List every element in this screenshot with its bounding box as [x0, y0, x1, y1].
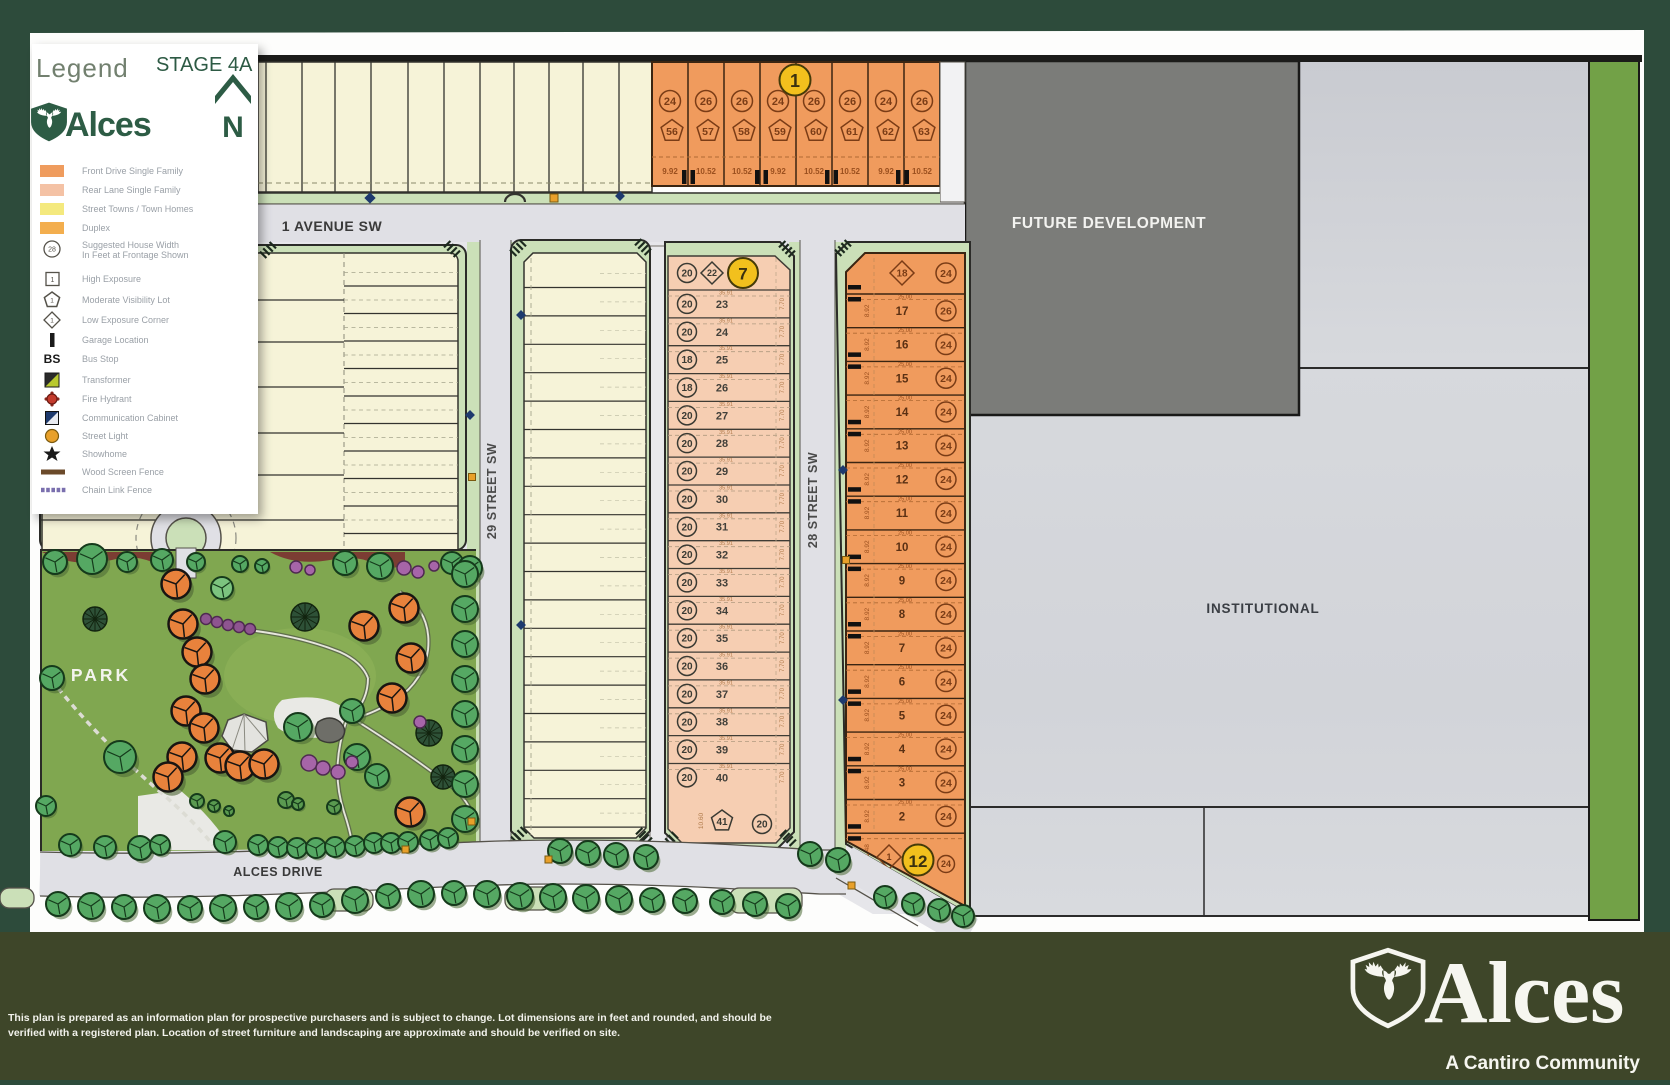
- svg-text:59: 59: [774, 126, 786, 138]
- svg-text:17: 17: [896, 306, 909, 318]
- svg-text:7.70: 7.70: [780, 492, 786, 504]
- svg-text:35.91: 35.91: [719, 541, 733, 547]
- svg-text:20: 20: [681, 773, 693, 784]
- svg-text:15: 15: [896, 373, 909, 385]
- svg-text:20: 20: [681, 689, 693, 700]
- svg-text:4: 4: [899, 744, 906, 756]
- svg-text:7.70: 7.70: [780, 437, 786, 449]
- svg-text:28: 28: [716, 438, 728, 450]
- svg-text:57: 57: [702, 126, 714, 138]
- svg-text:7.70: 7.70: [780, 353, 786, 365]
- svg-text:32: 32: [716, 550, 728, 562]
- svg-text:12: 12: [909, 852, 928, 871]
- svg-text:7.70: 7.70: [780, 715, 786, 727]
- svg-text:Transformer: Transformer: [82, 375, 131, 385]
- svg-text:8.92: 8.92: [864, 372, 871, 385]
- svg-text:Duplex: Duplex: [82, 223, 111, 233]
- svg-text:24: 24: [940, 407, 952, 419]
- svg-text:35.91: 35.91: [719, 374, 733, 380]
- svg-text:8.92: 8.92: [864, 506, 871, 519]
- svg-text:Wood Screen Fence: Wood Screen Fence: [82, 467, 164, 477]
- svg-text:25: 25: [716, 355, 728, 367]
- svg-text:20: 20: [681, 717, 693, 728]
- svg-text:Low Exposure Corner: Low Exposure Corner: [82, 315, 169, 325]
- svg-text:10.60: 10.60: [698, 812, 705, 829]
- svg-text:63: 63: [918, 126, 930, 138]
- svg-text:16: 16: [896, 340, 909, 352]
- svg-text:High Exposure: High Exposure: [82, 274, 141, 284]
- svg-text:8.92: 8.92: [864, 540, 871, 553]
- svg-text:20: 20: [681, 578, 693, 589]
- svg-text:20: 20: [681, 269, 693, 280]
- svg-text:10: 10: [896, 542, 909, 554]
- svg-text:37: 37: [716, 689, 728, 701]
- svg-text:20: 20: [681, 411, 693, 422]
- svg-text:24: 24: [940, 811, 952, 823]
- svg-text:25.00: 25.00: [898, 295, 912, 301]
- svg-text:18: 18: [681, 383, 693, 394]
- svg-text:24: 24: [940, 373, 952, 385]
- svg-text:35.91: 35.91: [719, 708, 733, 714]
- svg-text:10.52: 10.52: [840, 167, 861, 176]
- svg-text:20: 20: [681, 662, 693, 673]
- svg-text:Street Towns / Town Homes: Street Towns / Town Homes: [82, 204, 194, 214]
- svg-text:7.70: 7.70: [780, 576, 786, 588]
- svg-text:Garage Location: Garage Location: [82, 335, 149, 345]
- svg-text:verified with a registered pla: verified with a registered plan. Locatio…: [8, 1027, 620, 1039]
- svg-text:25.00: 25.00: [898, 362, 912, 368]
- svg-text:62: 62: [882, 126, 894, 138]
- svg-text:24: 24: [940, 474, 952, 486]
- svg-text:35.91: 35.91: [719, 625, 733, 631]
- svg-text:24: 24: [940, 508, 952, 520]
- svg-text:10.52: 10.52: [804, 167, 825, 176]
- svg-text:Moderate Visibility Lot: Moderate Visibility Lot: [82, 295, 170, 305]
- svg-text:24: 24: [940, 440, 952, 452]
- svg-text:24: 24: [940, 268, 952, 280]
- svg-text:26: 26: [736, 96, 748, 108]
- svg-text:20: 20: [756, 820, 768, 831]
- svg-text:25.00: 25.00: [898, 396, 912, 402]
- svg-text:29: 29: [716, 466, 728, 478]
- svg-text:STAGE 4A: STAGE 4A: [156, 54, 253, 76]
- svg-text:8.92: 8.92: [864, 439, 871, 452]
- svg-text:24: 24: [940, 676, 952, 688]
- svg-text:34: 34: [716, 605, 729, 617]
- svg-text:40: 40: [716, 772, 728, 784]
- svg-text:8.92: 8.92: [864, 810, 871, 823]
- svg-text:26: 26: [844, 96, 856, 108]
- svg-text:7.70: 7.70: [780, 465, 786, 477]
- svg-text:10.52: 10.52: [912, 167, 933, 176]
- svg-text:25.00: 25.00: [898, 800, 912, 806]
- svg-text:12: 12: [896, 474, 909, 486]
- svg-text:7: 7: [738, 265, 747, 284]
- svg-text:41: 41: [716, 817, 728, 828]
- svg-text:9: 9: [899, 575, 905, 587]
- svg-text:26: 26: [716, 382, 728, 394]
- svg-text:1: 1: [886, 852, 891, 862]
- svg-text:8: 8: [899, 609, 906, 621]
- svg-text:9.92: 9.92: [770, 167, 786, 176]
- svg-text:6: 6: [899, 677, 905, 689]
- svg-text:35.91: 35.91: [719, 430, 733, 436]
- svg-text:24: 24: [940, 339, 952, 351]
- svg-text:23: 23: [716, 299, 728, 311]
- svg-text:11: 11: [896, 508, 909, 520]
- svg-text:25.00: 25.00: [898, 429, 912, 435]
- svg-text:25.00: 25.00: [898, 699, 912, 705]
- svg-text:2: 2: [899, 811, 905, 823]
- svg-text:7.70: 7.70: [780, 520, 786, 532]
- svg-text:Showhome: Showhome: [82, 449, 127, 459]
- svg-text:1: 1: [50, 298, 54, 305]
- svg-text:8.92: 8.92: [864, 675, 871, 688]
- svg-text:20: 20: [681, 634, 693, 645]
- svg-text:8.92: 8.92: [864, 641, 871, 654]
- svg-text:8.92: 8.92: [864, 574, 871, 587]
- svg-text:35.91: 35.91: [719, 318, 733, 324]
- svg-text:29 STREET SW: 29 STREET SW: [485, 443, 499, 539]
- svg-text:22: 22: [707, 268, 717, 278]
- svg-text:26: 26: [700, 96, 712, 108]
- svg-text:INSTITUTIONAL: INSTITUTIONAL: [1206, 601, 1319, 616]
- svg-text:25.00: 25.00: [898, 766, 912, 772]
- svg-text:33: 33: [716, 577, 728, 589]
- svg-text:25.00: 25.00: [898, 598, 912, 604]
- svg-text:30: 30: [716, 494, 728, 506]
- svg-text:24: 24: [940, 575, 952, 587]
- svg-text:Bus Stop: Bus Stop: [82, 354, 119, 364]
- svg-text:35.91: 35.91: [719, 597, 733, 603]
- svg-text:26: 26: [808, 96, 820, 108]
- svg-text:3: 3: [899, 778, 905, 790]
- svg-text:7.70: 7.70: [780, 771, 786, 783]
- svg-text:7.70: 7.70: [780, 325, 786, 337]
- svg-text:25.00: 25.00: [898, 463, 912, 469]
- svg-text:25.00: 25.00: [898, 328, 912, 334]
- svg-text:28: 28: [48, 247, 56, 254]
- svg-text:20: 20: [681, 300, 693, 311]
- svg-text:24: 24: [940, 710, 952, 722]
- svg-text:7.70: 7.70: [780, 604, 786, 616]
- svg-text:1: 1: [790, 71, 800, 91]
- svg-text:35: 35: [716, 633, 728, 645]
- svg-text:7: 7: [899, 643, 905, 655]
- svg-text:7.70: 7.70: [780, 409, 786, 421]
- svg-text:5: 5: [899, 710, 906, 722]
- svg-text:35.91: 35.91: [719, 402, 733, 408]
- svg-text:58: 58: [738, 126, 750, 138]
- svg-text:26: 26: [916, 96, 928, 108]
- svg-text:35.91: 35.91: [719, 653, 733, 659]
- svg-text:18: 18: [681, 355, 693, 366]
- svg-text:56: 56: [666, 126, 678, 138]
- svg-text:BS: BS: [44, 352, 61, 366]
- svg-text:1: 1: [50, 318, 54, 325]
- svg-text:39: 39: [716, 745, 728, 757]
- svg-text:35.91: 35.91: [719, 291, 733, 297]
- svg-text:1: 1: [51, 277, 55, 284]
- svg-text:7.70: 7.70: [780, 381, 786, 393]
- svg-text:24: 24: [940, 777, 952, 789]
- svg-text:10.52: 10.52: [696, 167, 717, 176]
- svg-text:25.00: 25.00: [898, 665, 912, 671]
- svg-text:35.91: 35.91: [719, 736, 733, 742]
- svg-text:20: 20: [681, 522, 693, 533]
- svg-text:8.92: 8.92: [864, 776, 871, 789]
- svg-text:31: 31: [716, 522, 728, 534]
- svg-text:Communication Cabinet: Communication Cabinet: [82, 413, 179, 423]
- svg-text:Street Light: Street Light: [82, 431, 129, 441]
- svg-text:20: 20: [681, 550, 693, 561]
- svg-text:13: 13: [896, 441, 909, 453]
- svg-text:35.91: 35.91: [719, 458, 733, 464]
- svg-text:20: 20: [681, 494, 693, 505]
- svg-text:35.91: 35.91: [719, 680, 733, 686]
- svg-text:8.92: 8.92: [864, 304, 871, 317]
- svg-text:Front Drive Single Family: Front Drive Single Family: [82, 166, 184, 176]
- svg-text:25.00: 25.00: [898, 733, 912, 739]
- svg-text:20: 20: [681, 745, 693, 756]
- svg-text:24: 24: [940, 643, 952, 655]
- svg-text:38: 38: [716, 717, 728, 729]
- svg-text:27: 27: [716, 410, 728, 422]
- svg-text:35.91: 35.91: [719, 764, 733, 770]
- svg-text:35.91: 35.91: [719, 485, 733, 491]
- svg-text:Legend: Legend: [36, 53, 129, 83]
- svg-text:25.00: 25.00: [898, 497, 912, 503]
- svg-text:Alces: Alces: [65, 106, 151, 144]
- svg-text:In Feet at Frontage Shown: In Feet at Frontage Shown: [82, 250, 189, 260]
- svg-text:25.00: 25.00: [898, 564, 912, 570]
- svg-text:24: 24: [664, 96, 677, 108]
- svg-text:9.92: 9.92: [662, 167, 678, 176]
- svg-text:20: 20: [681, 439, 693, 450]
- svg-text:25.00: 25.00: [898, 530, 912, 536]
- svg-text:8.92: 8.92: [864, 338, 871, 351]
- svg-text:7.70: 7.70: [780, 297, 786, 309]
- svg-text:ALCES DRIVE: ALCES DRIVE: [233, 865, 323, 879]
- svg-text:7.70: 7.70: [780, 548, 786, 560]
- svg-text:PARK: PARK: [71, 665, 131, 685]
- svg-text:36: 36: [716, 661, 728, 673]
- svg-text:24: 24: [940, 542, 952, 554]
- svg-text:9.92: 9.92: [878, 167, 894, 176]
- svg-text:8.92: 8.92: [864, 405, 871, 418]
- svg-text:61: 61: [846, 126, 858, 138]
- svg-text:Alces: Alces: [1424, 945, 1624, 1042]
- svg-text:FUTURE DEVELOPMENT: FUTURE DEVELOPMENT: [1012, 215, 1206, 232]
- svg-text:14: 14: [896, 407, 909, 419]
- svg-text:35.91: 35.91: [719, 346, 733, 352]
- svg-text:24: 24: [880, 96, 893, 108]
- svg-text:20: 20: [681, 467, 693, 478]
- svg-text:24: 24: [940, 609, 952, 621]
- svg-text:60: 60: [810, 126, 822, 138]
- svg-text:35.91: 35.91: [719, 569, 733, 575]
- svg-text:8.92: 8.92: [864, 473, 871, 486]
- svg-text:18: 18: [896, 269, 908, 280]
- svg-text:20: 20: [681, 606, 693, 617]
- svg-text:24: 24: [772, 96, 785, 108]
- svg-text:24: 24: [716, 327, 729, 339]
- svg-text:35.91: 35.91: [719, 513, 733, 519]
- svg-text:20: 20: [681, 327, 693, 338]
- svg-text:Fire Hydrant: Fire Hydrant: [82, 394, 132, 404]
- svg-text:7.70: 7.70: [780, 687, 786, 699]
- svg-text:8.92: 8.92: [864, 742, 871, 755]
- svg-text:7.70: 7.70: [780, 743, 786, 755]
- svg-text:8.92: 8.92: [864, 709, 871, 722]
- svg-text:26: 26: [940, 306, 952, 318]
- svg-text:A Cantiro Community: A Cantiro Community: [1445, 1053, 1640, 1074]
- svg-text:This plan is prepared as an in: This plan is prepared as an information …: [8, 1012, 772, 1024]
- svg-text:7.70: 7.70: [780, 659, 786, 671]
- svg-text:N: N: [222, 111, 244, 144]
- svg-text:8.92: 8.92: [864, 607, 871, 620]
- svg-text:24: 24: [941, 859, 951, 869]
- svg-text:Suggested House Width: Suggested House Width: [82, 240, 179, 250]
- svg-text:1 AVENUE SW: 1 AVENUE SW: [282, 218, 383, 234]
- svg-text:28 STREET SW: 28 STREET SW: [806, 452, 820, 548]
- svg-text:24: 24: [940, 744, 952, 756]
- svg-text:7.70: 7.70: [780, 632, 786, 644]
- svg-text:Chain Link Fence: Chain Link Fence: [82, 485, 152, 495]
- svg-text:25.00: 25.00: [898, 632, 912, 638]
- svg-text:Rear Lane Single Family: Rear Lane Single Family: [82, 185, 181, 195]
- svg-text:10.52: 10.52: [732, 167, 753, 176]
